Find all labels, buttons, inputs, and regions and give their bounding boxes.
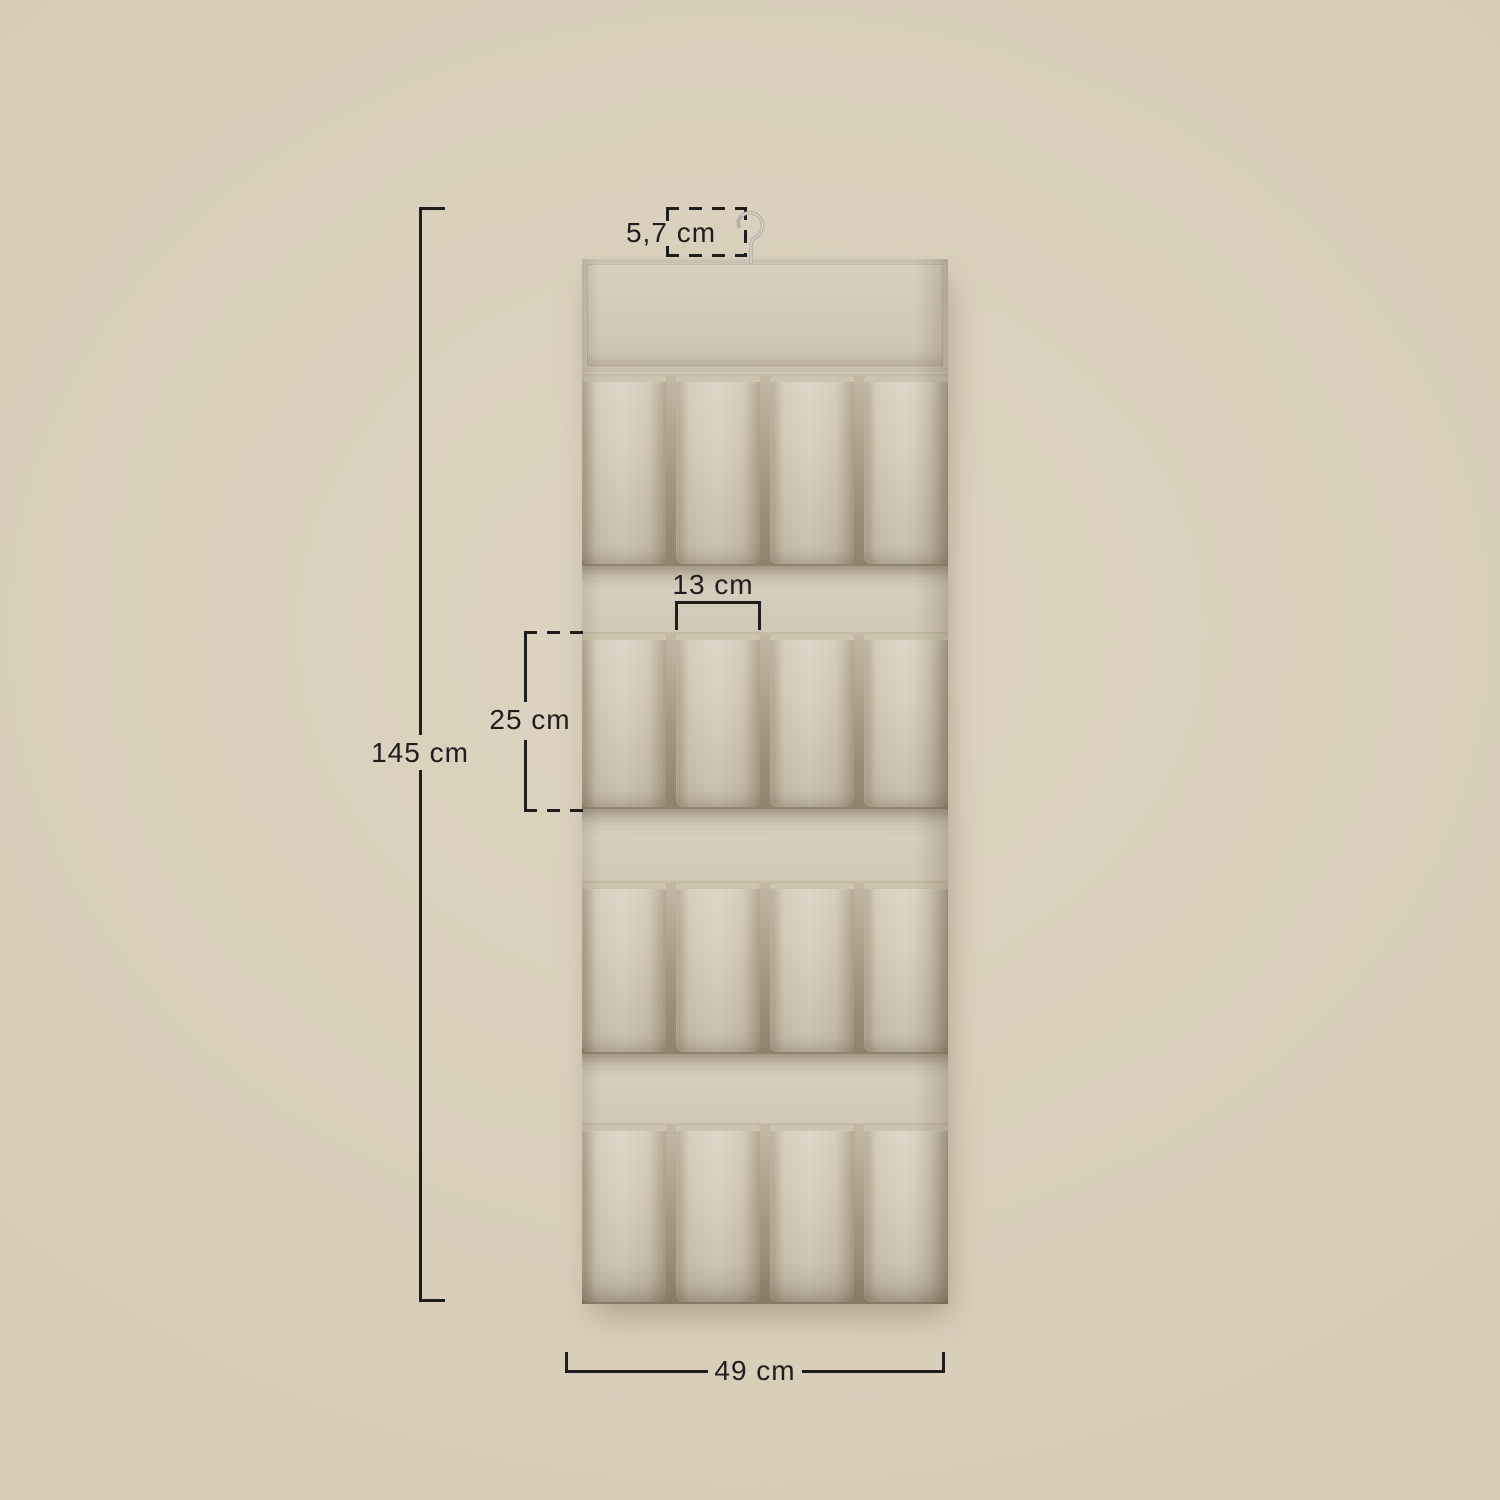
pocket — [770, 634, 854, 807]
pocket-height-label: 25 cm — [489, 706, 570, 734]
pocket-row — [582, 879, 948, 1054]
pocket — [770, 376, 854, 564]
hook-width-label: 5,7 cm — [626, 219, 716, 247]
dimension-line-segment — [802, 1370, 945, 1373]
dimension-line-segment — [419, 770, 422, 1302]
dimension-line-segment — [419, 207, 445, 210]
total-height-label: 145 cm — [371, 739, 469, 767]
pocket — [864, 883, 948, 1052]
pocket — [582, 376, 666, 564]
pocket — [582, 634, 666, 807]
dimension-line-segment — [524, 631, 587, 634]
dimension-line-segment — [565, 1370, 708, 1373]
pocket — [676, 634, 760, 807]
pocket — [676, 883, 760, 1052]
dimension-line-segment — [942, 1352, 945, 1373]
pocket-row — [582, 630, 948, 809]
backing-band — [582, 1054, 948, 1121]
pocket-row — [582, 1121, 948, 1304]
dimension-line-segment — [524, 740, 527, 811]
pocket — [676, 1125, 760, 1302]
organizer-header-band — [582, 259, 948, 372]
dimension-line-segment — [675, 601, 761, 604]
dimension-line-segment — [419, 1299, 445, 1302]
dimension-line-segment — [524, 809, 588, 812]
pocket-width-label: 13 cm — [672, 571, 753, 599]
pocket — [582, 1125, 666, 1302]
pocket — [770, 1125, 854, 1302]
pocket — [582, 883, 666, 1052]
backing-band — [582, 566, 948, 630]
pocket — [770, 883, 854, 1052]
pocket — [864, 376, 948, 564]
dimension-line-segment — [675, 601, 678, 630]
product-diagram-stage: 5,7 cm 13 cm 25 cm 145 cm 49 cm — [0, 0, 1500, 1500]
pocket — [864, 634, 948, 807]
dimension-line-segment — [758, 601, 761, 630]
pocket — [864, 1125, 948, 1302]
dimension-line-segment — [419, 207, 422, 735]
pocket-row — [582, 372, 948, 566]
total-width-label: 49 cm — [714, 1357, 795, 1385]
backing-band — [582, 809, 948, 879]
pocket — [676, 376, 760, 564]
hanger-hook-icon — [727, 202, 769, 264]
hanging-organizer — [582, 259, 948, 1304]
dimension-line-segment — [524, 631, 527, 702]
